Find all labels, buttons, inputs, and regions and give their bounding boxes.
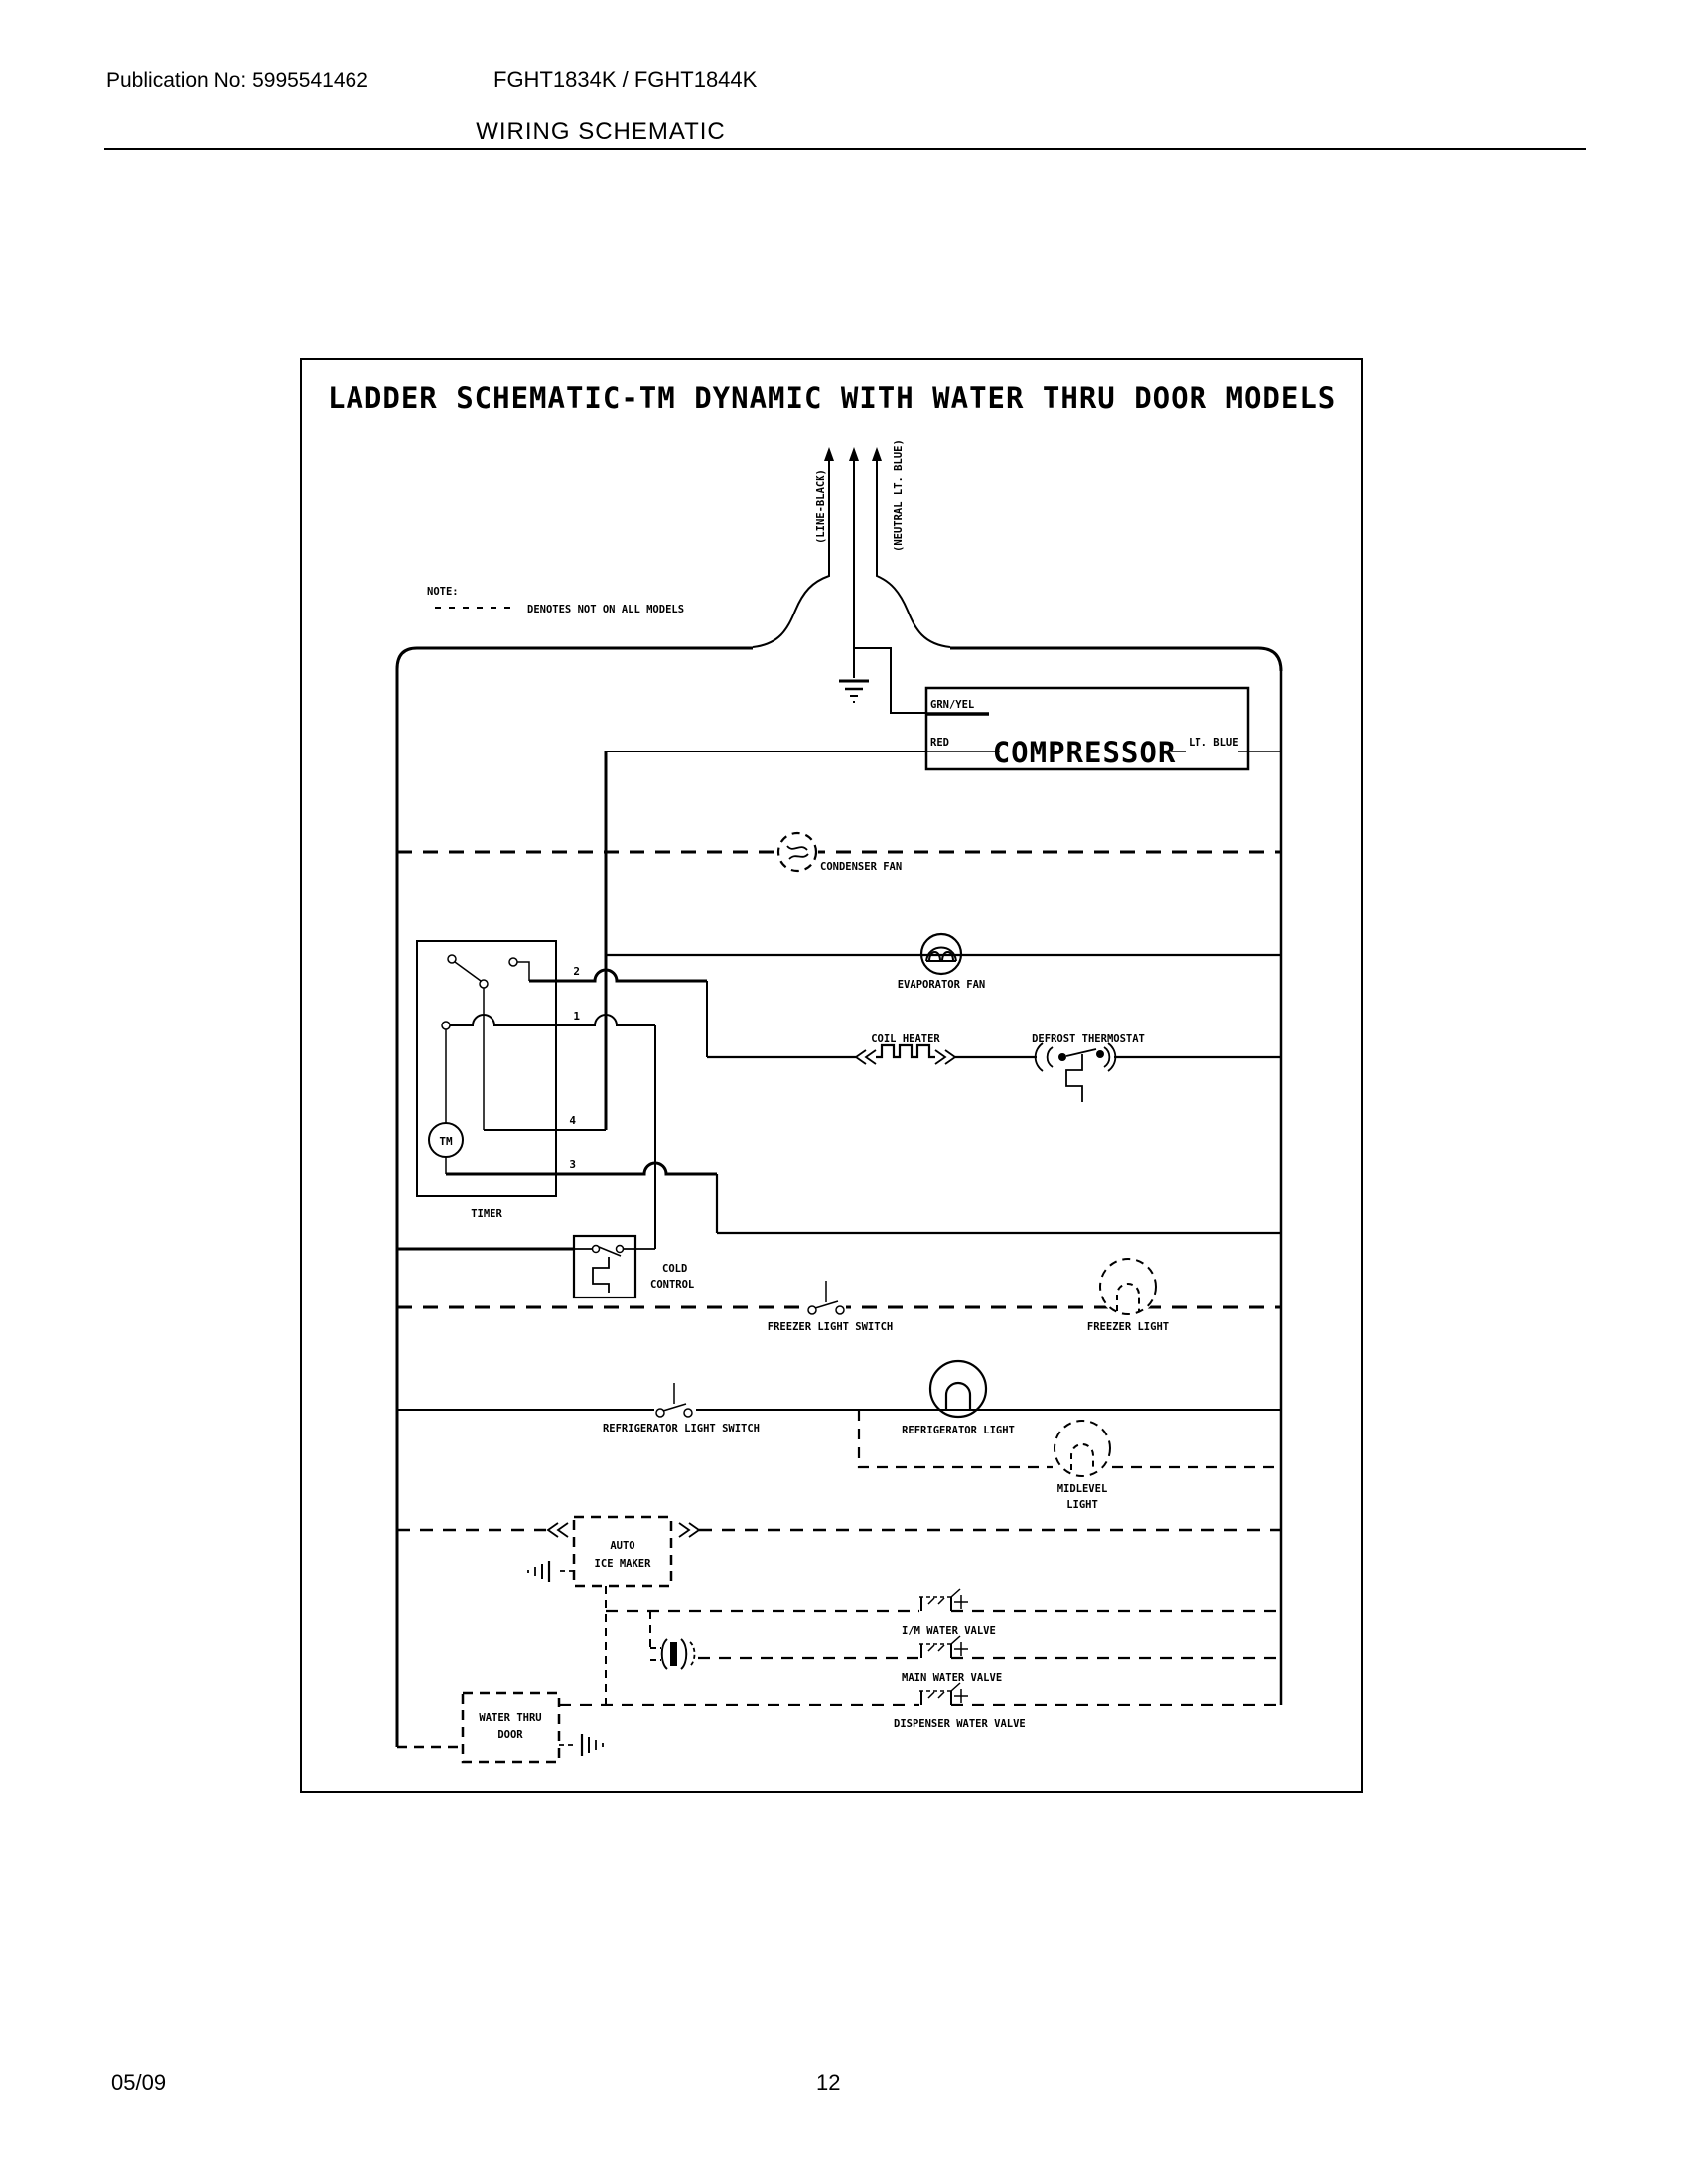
ice-maker-ground-icon xyxy=(528,1561,549,1582)
condenser-fan-label: CONDENSER FAN xyxy=(820,861,902,873)
connector-left-icon xyxy=(548,1523,568,1537)
main-water-valve-label: MAIN WATER VALVE xyxy=(902,1672,1002,1684)
terminal-2: 2 xyxy=(573,965,580,978)
wiring-schematic-canvas: Publication No: 5995541462 FGHT1834K / F… xyxy=(0,0,1688,2184)
refrigerator-light-switch-icon xyxy=(654,1383,696,1417)
midlevel-light-label-1: MIDLEVEL xyxy=(1057,1483,1108,1495)
midlevel-light-label-2: LIGHT xyxy=(1066,1499,1098,1511)
terminal-1-wire xyxy=(450,1015,655,1025)
terminal-3: 3 xyxy=(569,1159,576,1171)
manual-page: Publication No: 5995541462 FGHT1834K / F… xyxy=(0,0,1688,2184)
neutral-wire xyxy=(877,459,950,647)
compressor-box: GRN/YEL RED COMPRESSOR LT. BLUE xyxy=(606,688,1281,1130)
publication-number: Publication No: 5995541462 xyxy=(106,69,368,92)
tm-label: TM xyxy=(439,1135,453,1148)
midlevel-branch-wire xyxy=(859,1410,1053,1467)
ground-wire-arrow xyxy=(849,447,859,461)
freezer-light-row: FREEZER LIGHT SWITCH FREEZER LIGHT xyxy=(397,1257,1281,1333)
midlevel-light-icon xyxy=(1053,1419,1112,1478)
diagram-border xyxy=(301,359,1362,1792)
refrigerator-light-switch-label: REFRIGERATOR LIGHT SWITCH xyxy=(603,1423,760,1434)
defrost-row: COIL HEATER DEFROST THERMOSTAT xyxy=(707,981,1281,1102)
freezer-light-switch-label: FREEZER LIGHT SWITCH xyxy=(768,1321,893,1333)
cold-control-label-2: CONTROL xyxy=(650,1279,694,1291)
refrigerator-light-label: REFRIGERATOR LIGHT xyxy=(902,1425,1015,1436)
lt-blue-label: LT. BLUE xyxy=(1189,737,1239,749)
refrigerator-light-row: REFRIGERATOR LIGHT SWITCH REFRIGERATOR L… xyxy=(397,1361,1281,1511)
im-water-valve-label: I/M WATER VALVE xyxy=(902,1625,996,1637)
neutral-arrow xyxy=(872,447,882,461)
page-title: WIRING SCHEMATIC xyxy=(476,118,726,145)
freezer-light-icon xyxy=(1098,1257,1158,1316)
cold-control-icon xyxy=(574,1246,655,1294)
coil-heater-label: COIL HEATER xyxy=(871,1033,940,1045)
terminal-3-wire xyxy=(446,1163,717,1174)
harness-connector-icon xyxy=(650,1639,695,1669)
door-ground-icon xyxy=(582,1734,603,1756)
footer-date: 05/09 xyxy=(111,2070,166,2095)
dispenser-water-valve-label: DISPENSER WATER VALVE xyxy=(894,1718,1026,1730)
ice-maker-label-1: AUTO xyxy=(610,1540,634,1552)
cold-control-outline xyxy=(574,1236,635,1297)
cold-control-box: COLD CONTROL xyxy=(397,1025,694,1297)
main-water-valve-icon xyxy=(919,1636,968,1658)
ground-icon xyxy=(839,681,869,702)
ice-maker-label-2: ICE MAKER xyxy=(595,1558,652,1570)
timer-label: TIMER xyxy=(471,1208,502,1220)
page-footer: 05/09 12 xyxy=(111,2070,840,2095)
defrost-thermostat-icon xyxy=(1036,1043,1116,1102)
im-water-valve-icon xyxy=(919,1589,968,1611)
water-thru-door-outline xyxy=(463,1693,559,1762)
freezer-light-switch-icon xyxy=(806,1281,846,1314)
water-thru-door-label-1: WATER THRU xyxy=(479,1712,541,1724)
grn-yel-label: GRN/YEL xyxy=(930,699,974,711)
note: NOTE: DENOTES NOT ON ALL MODELS xyxy=(427,586,684,615)
line-black-arrow xyxy=(824,447,834,461)
dispenser-water-valve-icon xyxy=(919,1683,968,1705)
timer-box: TIMER 2 1 4 TM 3 xyxy=(417,941,1281,1233)
model-numbers: FGHT1834K / FGHT1844K xyxy=(493,68,758,92)
terminal-4: 4 xyxy=(569,1114,576,1127)
red-label: RED xyxy=(930,737,949,749)
timer-motor-icon: TM xyxy=(429,1123,463,1157)
ice-maker-outline xyxy=(574,1517,671,1586)
condenser-fan-icon xyxy=(776,831,818,873)
connector-right-icon xyxy=(679,1523,699,1537)
compressor-label: COMPRESSOR xyxy=(993,736,1177,769)
terminal-1: 1 xyxy=(573,1010,580,1023)
timer-switch-icon xyxy=(448,955,529,988)
supply-entry: (LINE-BLACK) (NEUTRAL LT. BLUE) xyxy=(397,439,1281,1747)
top-rail-left xyxy=(397,648,753,669)
defrost-thermostat-label: DEFROST THERMOSTAT xyxy=(1032,1033,1145,1045)
footer-page-number: 12 xyxy=(816,2070,840,2095)
note-label: NOTE: xyxy=(427,586,459,598)
diagram-frame: LADDER SCHEMATIC-TM DYNAMIC WITH WATER T… xyxy=(301,359,1362,1792)
schematic-title: LADDER SCHEMATIC-TM DYNAMIC WITH WATER T… xyxy=(328,381,1336,415)
cold-control-label-1: COLD xyxy=(662,1263,687,1275)
water-thru-door-box: WATER THRU DOOR xyxy=(397,1693,603,1762)
terminal-1-contact xyxy=(442,1022,450,1029)
condenser-fan-row: CONDENSER FAN xyxy=(397,831,1281,873)
line-black-label: (LINE-BLACK) xyxy=(815,469,827,544)
refrigerator-light-icon xyxy=(930,1361,986,1417)
note-text: DENOTES NOT ON ALL MODELS xyxy=(527,604,684,615)
page-header: Publication No: 5995541462 FGHT1834K / F… xyxy=(104,68,1586,149)
water-valves: I/M WATER VALVE MAIN WATER VALVE DISPENS… xyxy=(559,1589,1281,1730)
water-thru-door-label-2: DOOR xyxy=(497,1729,523,1741)
evaporator-fan-label: EVAPORATOR FAN xyxy=(898,979,986,991)
coil-heater-icon xyxy=(856,1045,955,1064)
top-rail-right xyxy=(950,648,1281,671)
freezer-light-label: FREEZER LIGHT xyxy=(1087,1321,1169,1333)
neutral-label: (NEUTRAL LT. BLUE) xyxy=(893,439,905,552)
